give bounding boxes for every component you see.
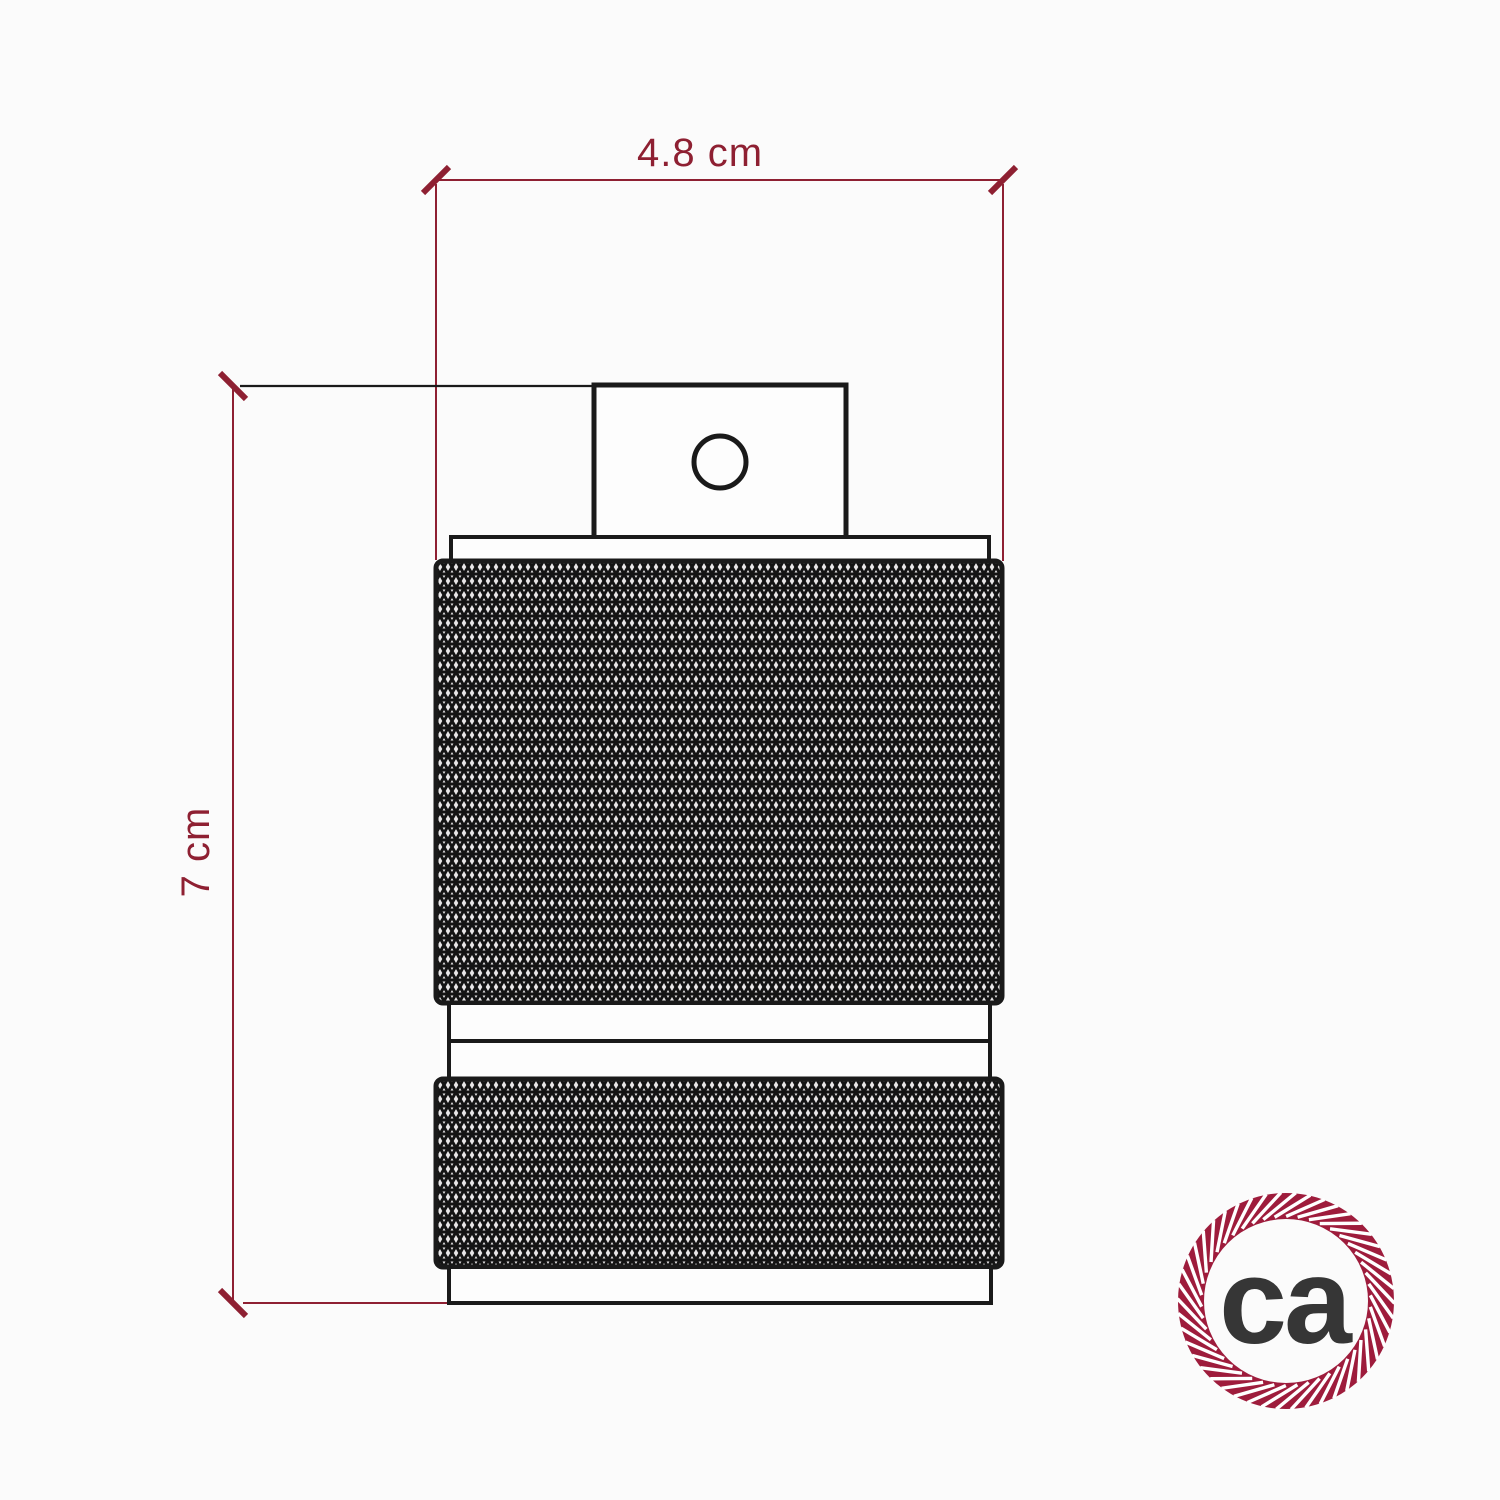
upper-flange (451, 537, 989, 561)
smooth-ring-upper (449, 1003, 990, 1041)
cable-entry-hole (694, 436, 746, 488)
smooth-ring-lower (449, 1041, 990, 1079)
product-dimension-diagram: 4.8 cm 7 cm (0, 0, 1500, 1500)
knurled-ring-upper (436, 561, 1002, 1003)
brand-logo: ca (1177, 1193, 1394, 1410)
dimension-diagram-canvas: 4.8 cm 7 cm (0, 0, 1500, 1500)
logo-text: ca (1219, 1233, 1353, 1369)
lamp-holder-drawing (240, 385, 1002, 1303)
height-dimension-label: 7 cm (174, 807, 218, 898)
knurled-ring-lower (436, 1079, 1002, 1267)
bottom-flange (449, 1267, 991, 1303)
width-dimension-label: 4.8 cm (637, 131, 763, 175)
height-dimension: 7 cm (174, 373, 451, 1316)
